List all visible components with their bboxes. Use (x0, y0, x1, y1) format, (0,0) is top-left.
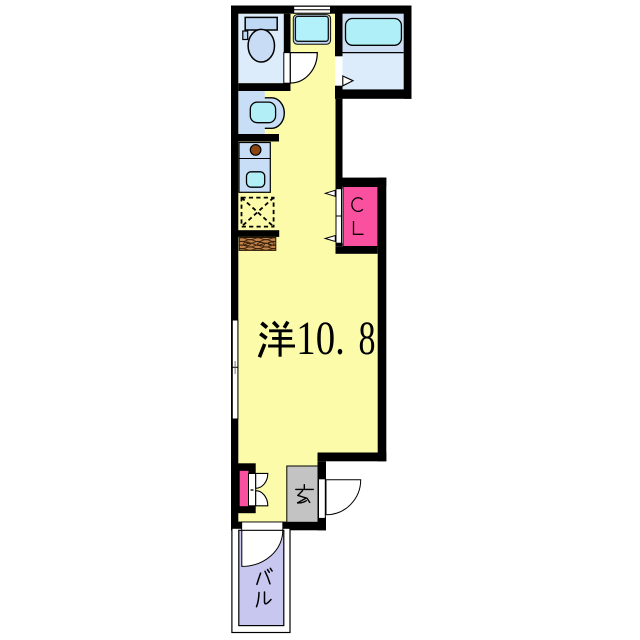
svg-text:8: 8 (359, 313, 376, 365)
svg-text:10.: 10. (296, 313, 345, 365)
